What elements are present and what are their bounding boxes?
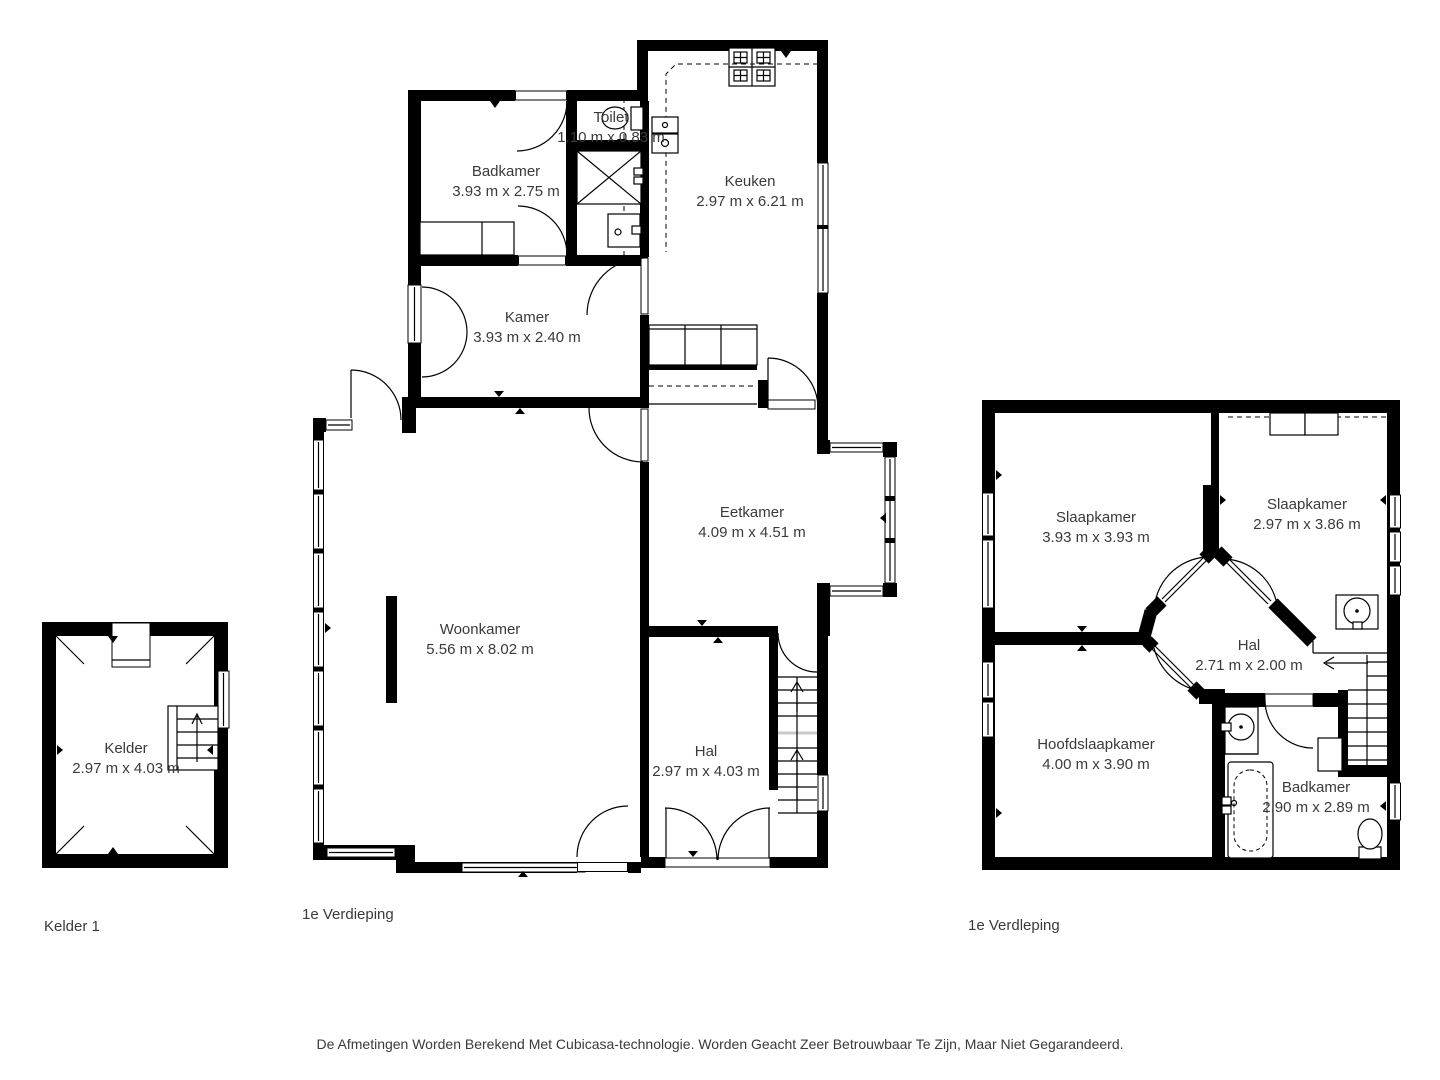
room-dimensions: 3.93 m x 2.75 m (452, 182, 560, 202)
room-label-badkamer-1f: Badkamer 3.93 m x 2.75 m (452, 162, 560, 202)
toilet-icon (1358, 819, 1382, 859)
room-label-kelder: Kelder 2.97 m x 4.03 m (72, 739, 180, 779)
room-name: Hal (652, 742, 760, 762)
room-name: Eetkamer (698, 503, 806, 523)
room-label-slaapkamer-1: Slaapkamer 3.93 m x 3.93 m (1042, 508, 1150, 548)
room-dimensions: 3.93 m x 3.93 m (1042, 528, 1150, 548)
shower-icon (577, 151, 643, 204)
stairs-icon (778, 677, 817, 813)
room-dimensions: 2.71 m x 2.00 m (1195, 656, 1303, 676)
floor-label-first-floor: 1e Verdieping (302, 906, 394, 924)
stove-icon (729, 48, 775, 86)
kitchen-counter (649, 325, 757, 404)
room-label-toilet: Toilet 1.10 m x 0.83 m (557, 108, 665, 148)
room-name: Badkamer (1262, 778, 1370, 798)
chimney (386, 596, 397, 703)
room-dimensions: 5.56 m x 8.02 m (426, 640, 534, 660)
room-name: Kamer (473, 308, 581, 328)
room-dimensions: 4.09 m x 4.51 m (698, 523, 806, 543)
room-dimensions: 2.97 m x 3.86 m (1253, 515, 1361, 535)
room-name: Hal (1195, 636, 1303, 656)
room-dimensions: 4.00 m x 3.90 m (1037, 755, 1155, 775)
floorplan-page: Kelder 2.97 m x 4.03 m Badkamer 3.93 m x… (0, 0, 1440, 1080)
room-label-keuken: Keuken 2.97 m x 6.21 m (696, 172, 804, 212)
room-label-slaapkamer-2: Slaapkamer 2.97 m x 3.86 m (1253, 495, 1361, 535)
room-label-kamer: Kamer 3.93 m x 2.40 m (473, 308, 581, 348)
room-name: Badkamer (452, 162, 560, 182)
room-name: Keuken (696, 172, 804, 192)
room-label-eetkamer: Eetkamer 4.09 m x 4.51 m (698, 503, 806, 543)
room-name: Woonkamer (426, 620, 534, 640)
room-dimensions: 1.10 m x 0.83 m (557, 128, 665, 148)
room-dimensions: 2.97 m x 6.21 m (696, 192, 804, 212)
room-label-hoofdslaapkamer: Hoofdslaapkamer 4.00 m x 3.90 m (1037, 735, 1155, 775)
disclaimer-text: De Afmetingen Worden Berekend Met Cubica… (0, 1036, 1440, 1052)
window-icons (314, 163, 896, 872)
room-dimensions: 3.93 m x 2.40 m (473, 328, 581, 348)
wardrobe-icon (1228, 413, 1387, 435)
window-icon (218, 671, 229, 728)
room-label-badkamer-2f: Badkamer 2.90 m x 2.89 m (1262, 778, 1370, 818)
cabinet (1318, 738, 1342, 771)
room-name: Hoofdslaapkamer (1037, 735, 1155, 755)
floor-label-second-floor: 1e Verdleping (968, 917, 1060, 935)
room-dimensions: 2.97 m x 4.03 m (652, 762, 760, 782)
bathroom-sink-icon (1221, 707, 1258, 754)
floor-plan-first (313, 40, 897, 877)
room-name: Toilet (557, 108, 665, 128)
washbasin-icon (608, 214, 641, 247)
sink-icon (1336, 595, 1378, 629)
room-label-hal-1f: Hal 2.97 m x 4.03 m (652, 742, 760, 782)
room-label-hal-2f: Hal 2.71 m x 2.00 m (1195, 636, 1303, 676)
room-dimensions: 2.97 m x 4.03 m (72, 759, 180, 779)
room-name: Slaapkamer (1042, 508, 1150, 528)
bathroom-vanity (420, 222, 514, 255)
room-name: Kelder (72, 739, 180, 759)
room-dimensions: 2.90 m x 2.89 m (1262, 798, 1370, 818)
floor-label-kelder: Kelder 1 (44, 918, 100, 936)
room-name: Slaapkamer (1253, 495, 1361, 515)
room-label-woonkamer: Woonkamer 5.56 m x 8.02 m (426, 620, 534, 660)
